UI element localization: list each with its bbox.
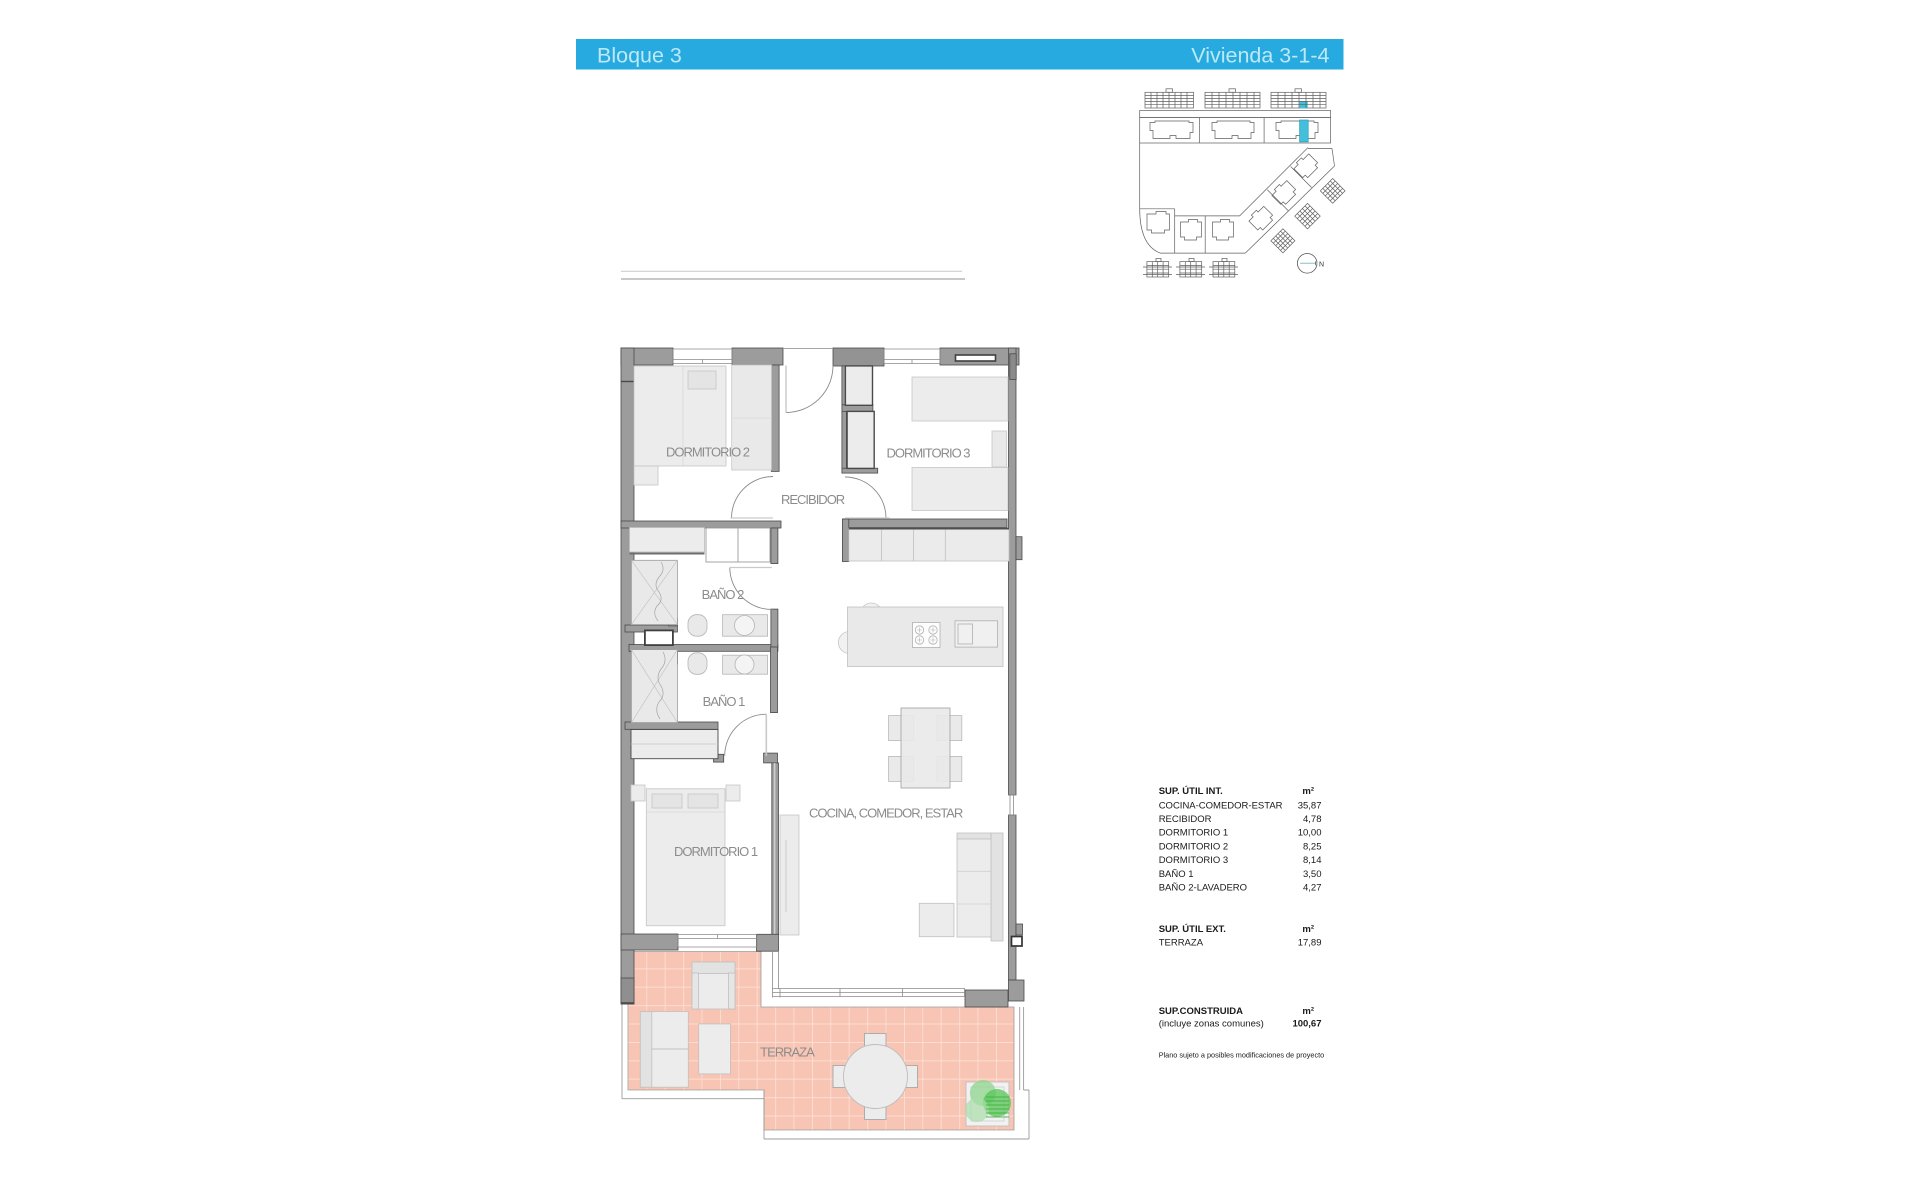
svg-text:SUP.CONSTRUIDA: SUP.CONSTRUIDA <box>1159 1006 1243 1017</box>
svg-text:COCINA-COMEDOR-ESTAR: COCINA-COMEDOR-ESTAR <box>1159 800 1283 811</box>
svg-text:BAÑO 2: BAÑO 2 <box>702 587 744 602</box>
svg-text:m²: m² <box>1302 786 1314 797</box>
svg-text:BAÑO 2-LAVADERO: BAÑO 2-LAVADERO <box>1159 882 1247 893</box>
svg-text:10,00: 10,00 <box>1298 828 1322 839</box>
svg-text:DORMITORIO 3: DORMITORIO 3 <box>1159 855 1229 866</box>
svg-text:TERRAZA: TERRAZA <box>760 1045 815 1060</box>
svg-text:4,27: 4,27 <box>1303 882 1322 893</box>
svg-text:BAÑO 1: BAÑO 1 <box>1159 869 1194 880</box>
svg-text:(incluye zonas comunes): (incluye zonas comunes) <box>1159 1019 1264 1030</box>
svg-text:SUP. ÚTIL INT.: SUP. ÚTIL INT. <box>1159 785 1223 797</box>
svg-text:100,67: 100,67 <box>1292 1019 1321 1030</box>
svg-text:8,14: 8,14 <box>1303 855 1322 866</box>
svg-text:Plano sujeto a posibles modifi: Plano sujeto a posibles modificaciones d… <box>1159 1050 1325 1059</box>
svg-text:RECIBIDOR: RECIBIDOR <box>1159 814 1212 825</box>
svg-text:DORMITORIO 2: DORMITORIO 2 <box>1159 842 1229 853</box>
svg-text:DORMITORIO 1: DORMITORIO 1 <box>1159 828 1229 839</box>
svg-text:N: N <box>1319 261 1324 268</box>
svg-text:DORMITORIO 1: DORMITORIO 1 <box>674 844 758 859</box>
svg-text:TERRAZA: TERRAZA <box>1159 937 1204 948</box>
svg-text:Vivienda 3-1-4: Vivienda 3-1-4 <box>1191 44 1329 68</box>
svg-text:BAÑO 1: BAÑO 1 <box>703 694 745 709</box>
svg-text:DORMITORIO 2: DORMITORIO 2 <box>666 445 750 460</box>
svg-text:COCINA, COMEDOR, ESTAR: COCINA, COMEDOR, ESTAR <box>809 806 963 821</box>
svg-text:35,87: 35,87 <box>1298 800 1322 811</box>
svg-text:RECIBIDOR: RECIBIDOR <box>781 492 845 507</box>
svg-text:m²: m² <box>1302 1006 1314 1017</box>
svg-text:m²: m² <box>1302 924 1314 935</box>
svg-text:4,78: 4,78 <box>1303 814 1322 825</box>
svg-text:8,25: 8,25 <box>1303 842 1322 853</box>
svg-text:DORMITORIO 3: DORMITORIO 3 <box>886 445 970 460</box>
svg-text:17,89: 17,89 <box>1298 937 1322 948</box>
svg-text:Bloque 3: Bloque 3 <box>597 44 682 68</box>
svg-text:3,50: 3,50 <box>1303 869 1322 880</box>
svg-text:SUP. ÚTIL EXT.: SUP. ÚTIL EXT. <box>1159 923 1226 935</box>
